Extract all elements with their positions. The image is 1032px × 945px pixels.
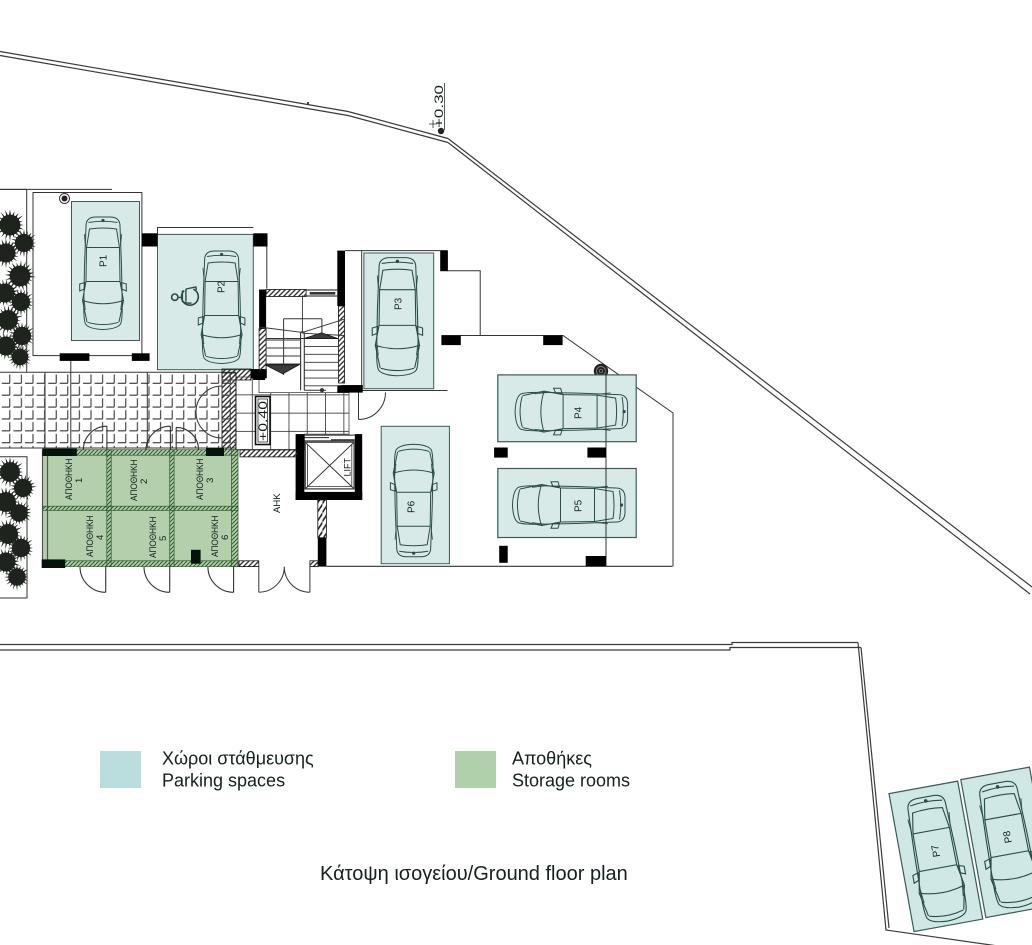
svg-text:P8: P8 xyxy=(1002,829,1015,843)
svg-text:+0.40: +0.40 xyxy=(256,401,270,441)
svg-text:5: 5 xyxy=(158,536,169,541)
svg-text:P7: P7 xyxy=(930,843,943,857)
svg-text:Χώροι στάθμευσης: Χώροι στάθμευσης xyxy=(162,749,314,769)
svg-text:Storage rooms: Storage rooms xyxy=(512,771,630,791)
svg-text:P3: P3 xyxy=(394,297,405,310)
svg-text:3: 3 xyxy=(205,478,216,483)
svg-text:2: 2 xyxy=(139,479,150,484)
svg-text:4: 4 xyxy=(95,534,106,540)
svg-text:Αποθήκες: Αποθήκες xyxy=(512,749,592,769)
svg-text:+0.30: +0.30 xyxy=(432,85,446,128)
svg-text:Parking spaces: Parking spaces xyxy=(162,771,285,791)
svg-text:6: 6 xyxy=(220,535,231,540)
svg-text:P5: P5 xyxy=(574,499,585,512)
svg-text:P2: P2 xyxy=(217,280,228,293)
svg-text:P6: P6 xyxy=(407,500,418,513)
svg-text:P1: P1 xyxy=(99,254,110,267)
svg-text:Κάτοψη ισογείου/Ground floor p: Κάτοψη ισογείου/Ground floor plan xyxy=(320,863,628,885)
svg-text:P4: P4 xyxy=(574,406,585,419)
svg-text:AHK: AHK xyxy=(272,493,283,513)
svg-text:LIFT: LIFT xyxy=(343,457,353,476)
svg-text:1: 1 xyxy=(74,478,85,483)
